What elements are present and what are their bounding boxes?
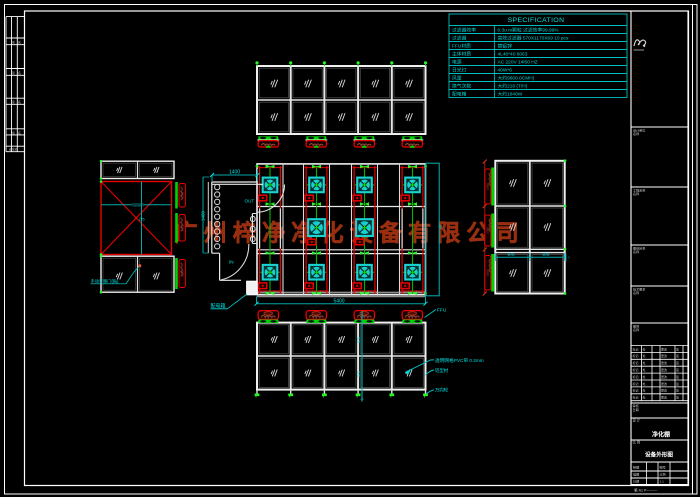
svg-text:处: 处 <box>643 388 646 393</box>
svg-text:更改: 更改 <box>661 346 667 351</box>
svg-text:比 例: 比 例 <box>633 440 641 445</box>
svg-text:名称: 名称 <box>633 290 639 295</box>
svg-text:日光灯: 日光灯 <box>452 67 467 74</box>
svg-text:图号: 图号 <box>660 465 666 470</box>
svg-text:标记: 标记 <box>633 360 639 365</box>
svg-text:电源: 电源 <box>452 59 462 66</box>
svg-text:镀铝锌: 镀铝锌 <box>498 43 513 50</box>
svg-text:标记: 标记 <box>633 374 639 379</box>
svg-text:更改: 更改 <box>661 388 667 393</box>
svg-text:标记: 标记 <box>633 395 639 400</box>
svg-text:签: 签 <box>676 367 679 372</box>
svg-text:处: 处 <box>643 367 646 372</box>
svg-text:更改: 更改 <box>661 381 667 386</box>
svg-text:过滤器效率: 过滤器效率 <box>452 27 476 34</box>
svg-text:更改: 更改 <box>661 395 667 400</box>
svg-text:ⅅ5: ⅅ5 <box>139 217 145 222</box>
svg-text:2350: 2350 <box>180 192 184 199</box>
svg-text:5400: 5400 <box>333 298 344 304</box>
svg-text:签: 签 <box>676 346 679 351</box>
svg-text:名: 名 <box>18 70 21 75</box>
svg-text:签: 签 <box>12 130 15 135</box>
svg-text:名称: 名称 <box>633 131 639 136</box>
svg-text:净: 净 <box>262 220 285 246</box>
svg-text:第 A1 P———: 第 A1 P——— <box>634 488 658 493</box>
svg-text:标记: 标记 <box>633 346 639 351</box>
svg-text:970: 970 <box>508 252 516 257</box>
svg-text:2350: 2350 <box>180 224 184 231</box>
svg-text:日期: 日期 <box>633 407 639 412</box>
svg-text:风量: 风量 <box>452 75 462 82</box>
svg-text:名称: 名称 <box>633 191 639 196</box>
svg-text:比例: 比例 <box>660 472 666 477</box>
svg-text:大约9600.0CMH): 大约9600.0CMH) <box>498 75 535 82</box>
svg-text:标记: 标记 <box>633 353 639 358</box>
svg-text:更改: 更改 <box>661 353 667 358</box>
svg-text:处: 处 <box>643 360 646 365</box>
svg-text:签: 签 <box>12 99 15 104</box>
svg-text:换气次数: 换气次数 <box>452 83 471 90</box>
svg-text:名: 名 <box>18 99 21 104</box>
svg-text:签: 签 <box>676 360 679 365</box>
svg-text:配电箱: 配电箱 <box>452 91 467 98</box>
svg-text:处: 处 <box>643 381 646 386</box>
svg-text:名: 名 <box>18 39 21 44</box>
svg-text:2350: 2350 <box>180 270 184 277</box>
svg-text:FFU材质: FFU材质 <box>452 43 471 50</box>
svg-text:IN: IN <box>229 260 234 265</box>
svg-text:4L40*40 6063: 4L40*40 6063 <box>498 52 528 58</box>
svg-text:更改: 更改 <box>661 367 667 372</box>
svg-text:司: 司 <box>496 220 519 246</box>
svg-text:↨: ↨ <box>568 255 570 259</box>
svg-text:标记: 标记 <box>633 367 639 372</box>
svg-text:过滤器: 过滤器 <box>452 35 467 42</box>
svg-text:970: 970 <box>357 337 361 343</box>
svg-text:日期: 日期 <box>633 479 639 484</box>
svg-text:1:1: 1:1 <box>660 480 665 484</box>
svg-text:签: 签 <box>676 388 679 393</box>
svg-text:净化棚: 净化棚 <box>652 431 670 439</box>
svg-text:2350: 2350 <box>485 269 489 276</box>
svg-text:AC 220V 1Φ50 HZ: AC 220V 1Φ50 HZ <box>498 60 538 66</box>
svg-text:会签栏: 会签栏 <box>9 147 18 152</box>
svg-text:设备外形图: 设备外形图 <box>645 451 673 459</box>
svg-text:SPECIFICATION: SPECIFICATION <box>508 17 565 24</box>
svg-text:处: 处 <box>643 374 646 379</box>
svg-text:40W*6: 40W*6 <box>498 68 513 74</box>
svg-text:设 计: 设 计 <box>633 418 641 423</box>
svg-text:970: 970 <box>357 371 361 377</box>
svg-text:大约1840W: 大约1840W <box>498 91 523 98</box>
svg-text:1480: 1480 <box>200 210 205 221</box>
svg-text:处: 处 <box>643 353 646 358</box>
svg-text:0.3u m颗粒 过滤效率99.99%: 0.3u m颗粒 过滤效率99.99% <box>498 27 560 34</box>
svg-text:处: 处 <box>643 395 646 400</box>
svg-text:透明网格PVC帘 0.2mm: 透明网格PVC帘 0.2mm <box>435 357 484 364</box>
svg-text:±5: ±5 <box>439 225 443 229</box>
svg-text:标记: 标记 <box>633 381 639 386</box>
svg-text:名: 名 <box>18 130 21 135</box>
svg-text:限: 限 <box>437 220 460 246</box>
svg-text:大约218 (T/H): 大约218 (T/H) <box>498 83 528 90</box>
svg-text:2350: 2350 <box>485 227 489 234</box>
svg-text:名称: 名称 <box>633 327 639 332</box>
svg-text:有: 有 <box>408 220 431 246</box>
svg-text:更改: 更改 <box>661 360 667 365</box>
svg-text:标记: 标记 <box>633 388 639 393</box>
svg-text:签: 签 <box>676 353 679 358</box>
svg-text:处: 处 <box>643 346 646 351</box>
svg-text:签: 签 <box>676 395 679 400</box>
svg-text:描图: 描图 <box>633 472 639 477</box>
svg-text:2350: 2350 <box>485 183 489 190</box>
svg-text:制图: 制图 <box>633 465 639 470</box>
svg-text:主体材质: 主体材质 <box>452 51 471 58</box>
svg-text:广: 广 <box>175 220 198 246</box>
svg-text:签: 签 <box>12 39 15 44</box>
svg-text:铝型材: 铝型材 <box>435 367 449 374</box>
svg-text:FFU: FFU <box>437 308 447 314</box>
svg-text:名称: 名称 <box>633 249 639 254</box>
svg-text:970: 970 <box>543 252 551 257</box>
svg-text:←→: ←→ <box>134 203 141 207</box>
svg-text:更改: 更改 <box>661 374 667 379</box>
svg-text:高效过滤器 570X1170X69 10 pcs: 高效过滤器 570X1170X69 10 pcs <box>498 35 569 42</box>
svg-text:签: 签 <box>676 374 679 379</box>
svg-text:签: 签 <box>12 70 15 75</box>
svg-text:万向轮: 万向轮 <box>435 386 449 393</box>
svg-text:OUT: OUT <box>245 199 255 204</box>
svg-text:签: 签 <box>676 381 679 386</box>
svg-text:1400: 1400 <box>229 170 240 176</box>
